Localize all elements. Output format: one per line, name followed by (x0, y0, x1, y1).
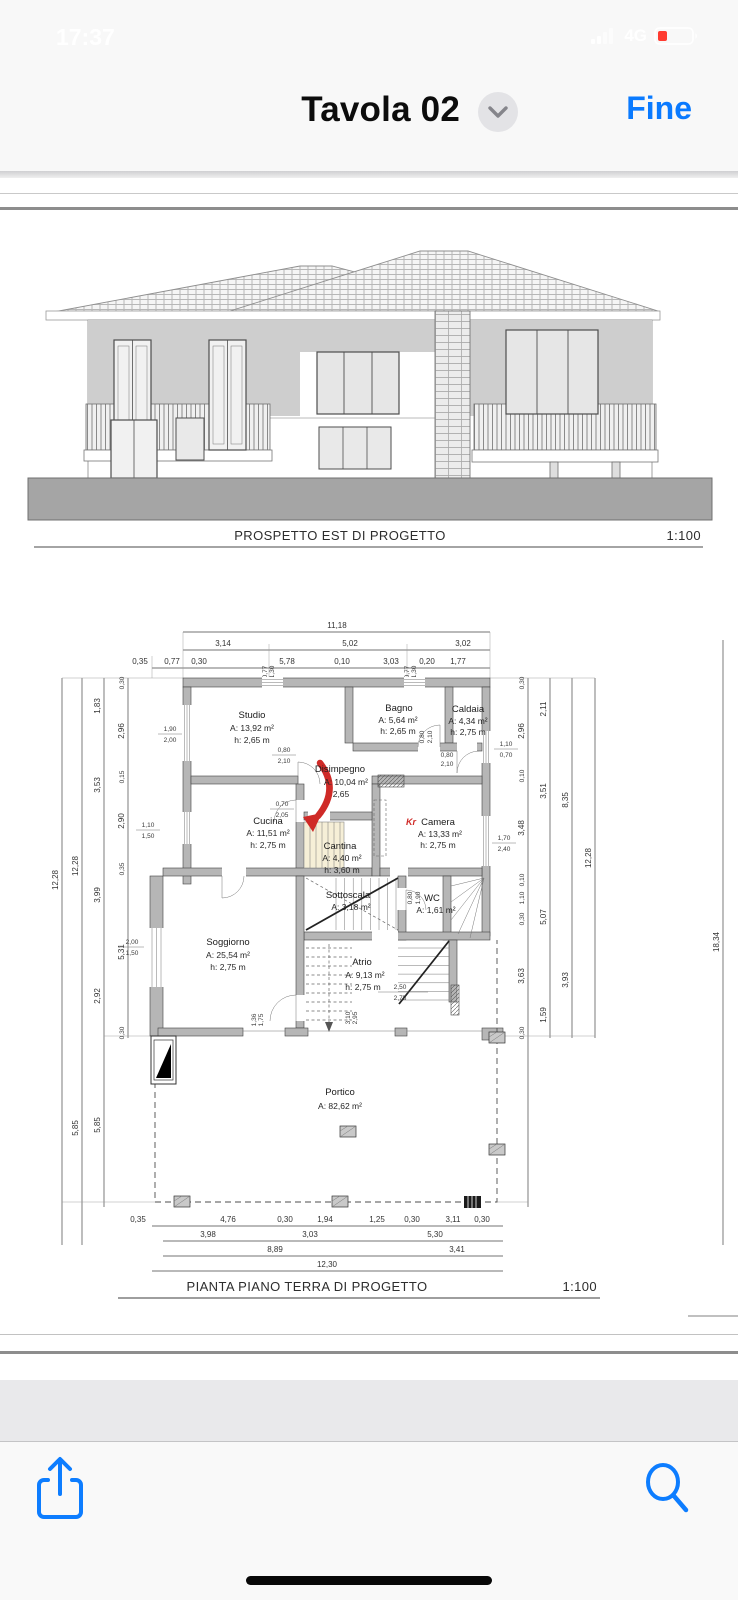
pillar-dark (464, 1196, 481, 1208)
svg-text:1,10: 1,10 (519, 891, 526, 904)
svg-text:5,02: 5,02 (342, 639, 358, 648)
svg-text:h: 2,75 m: h: 2,75 m (250, 840, 285, 850)
svg-text:2,90: 2,90 (117, 813, 126, 829)
svg-text:0,70: 0,70 (500, 752, 513, 759)
window-lower-small (176, 418, 204, 460)
svg-text:3,03: 3,03 (383, 657, 399, 666)
svg-text:5,30: 5,30 (427, 1230, 443, 1239)
svg-text:h: 2,75 m: h: 2,75 m (450, 727, 485, 737)
svg-text:3,10: 3,10 (345, 1011, 352, 1024)
svg-text:5,31: 5,31 (117, 944, 126, 960)
french-door (209, 340, 246, 450)
network-type-label: 4G (624, 26, 647, 46)
camera-red-mark: Kr (406, 817, 416, 827)
svg-text:A: 13,92 m²: A: 13,92 m² (230, 723, 274, 733)
svg-text:2,95: 2,95 (352, 1011, 359, 1024)
svg-text:1,50: 1,50 (126, 950, 139, 957)
svg-text:2,96: 2,96 (517, 723, 526, 739)
svg-text:3,98: 3,98 (200, 1230, 216, 1239)
svg-text:3,11: 3,11 (446, 1215, 462, 1224)
plan-scale: 1:100 (562, 1279, 597, 1294)
svg-text:3,99: 3,99 (93, 887, 102, 903)
svg-text:2,10: 2,10 (278, 758, 291, 765)
top-chrome: 17:37 4G Tavola 02 Fine (0, 0, 738, 171)
svg-text:A: 82,62 m²: A: 82,62 m² (318, 1101, 362, 1111)
svg-text:3,63: 3,63 (517, 968, 526, 984)
ground-band (28, 478, 712, 520)
svg-text:3,14: 3,14 (215, 639, 231, 648)
dim-bottom: 0,35 4,76 0,30 1,94 1,25 0,30 3,11 0,30 … (130, 1215, 503, 1271)
svg-text:0,10: 0,10 (519, 873, 526, 886)
svg-text:0,35: 0,35 (130, 1215, 146, 1224)
svg-text:2,11: 2,11 (539, 701, 548, 717)
svg-text:12,28: 12,28 (51, 869, 60, 890)
svg-text:0,77: 0,77 (404, 665, 411, 678)
svg-text:5,07: 5,07 (539, 909, 548, 925)
svg-text:1,30: 1,30 (269, 665, 276, 678)
svg-text:A: 9,13 m²: A: 9,13 m² (345, 970, 384, 980)
svg-text:0,30: 0,30 (191, 657, 207, 666)
svg-text:A: 4,34 m²: A: 4,34 m² (448, 716, 487, 726)
dim-right: 0,30 2,96 0,10 3,48 0,10 1,10 0,30 3,63 … (490, 640, 723, 1245)
page-edge-line-bottom-1 (0, 1334, 738, 1335)
done-button[interactable]: Fine (626, 90, 692, 127)
svg-text:0,30: 0,30 (519, 912, 526, 925)
svg-text:0,30: 0,30 (277, 1215, 293, 1224)
svg-text:1,83: 1,83 (93, 698, 102, 714)
svg-text:12,28: 12,28 (584, 847, 593, 868)
elevation-caption: PROSPETTO EST DI PROGETTO (234, 528, 446, 543)
elevation-drawing: PROSPETTO EST DI PROGETTO 1:100 (28, 251, 712, 547)
svg-text:h: 3,60 m: h: 3,60 m (324, 865, 359, 875)
svg-text:A: 3,18 m²: A: 3,18 m² (331, 902, 370, 912)
svg-text:8,89: 8,89 (267, 1245, 283, 1254)
svg-text:0,80: 0,80 (278, 747, 291, 754)
svg-text:1,25: 1,25 (369, 1215, 385, 1224)
svg-text:A: 1,61 m²: A: 1,61 m² (416, 905, 455, 915)
svg-text:0,80: 0,80 (441, 752, 454, 759)
svg-text:2,05: 2,05 (276, 812, 289, 819)
status-icons: 4G (591, 26, 700, 46)
svg-text:A: 5,64 m²: A: 5,64 m² (378, 715, 417, 725)
window-lower-middle (319, 427, 391, 469)
svg-text:1,10: 1,10 (142, 822, 155, 829)
svg-text:2,75: 2,75 (394, 995, 407, 1002)
svg-text:0,35: 0,35 (132, 657, 148, 666)
svg-text:2,65: 2,65 (333, 789, 350, 799)
svg-text:12,28: 12,28 (71, 855, 80, 876)
svg-text:8,35: 8,35 (561, 792, 570, 808)
svg-text:Studio: Studio (239, 710, 266, 721)
pillar (489, 1032, 505, 1043)
floor-plan-drawing: 11,18 3,14 5,02 3,02 0,35 0,77 0,30 5,78… (51, 621, 738, 1316)
page-gap-band (0, 1380, 738, 1442)
shutter-symbol (151, 1036, 176, 1084)
svg-text:1,59: 1,59 (539, 1007, 548, 1023)
entry-door (111, 420, 157, 478)
svg-text:h: 2,65 m: h: 2,65 m (380, 726, 415, 736)
svg-text:0,30: 0,30 (404, 1215, 420, 1224)
plan-caption: PIANTA PIANO TERRA DI PROGETTO (187, 1279, 428, 1294)
page-edge-line-bottom-2 (0, 1351, 738, 1354)
svg-text:0,77: 0,77 (262, 665, 269, 678)
svg-text:0,30: 0,30 (519, 1026, 526, 1039)
svg-text:0,70: 0,70 (276, 801, 289, 808)
roof-fascia (46, 311, 660, 320)
svg-text:Camera: Camera (421, 817, 456, 828)
svg-text:3,41: 3,41 (449, 1245, 465, 1254)
svg-text:2,00: 2,00 (126, 939, 139, 946)
svg-text:1,90: 1,90 (415, 891, 422, 904)
pillar (174, 1196, 190, 1207)
pillar (489, 1144, 505, 1155)
svg-text:1,77: 1,77 (450, 657, 466, 666)
svg-text:2,10: 2,10 (441, 761, 454, 768)
stone-chimney (435, 311, 470, 478)
svg-text:18,34: 18,34 (712, 931, 721, 952)
svg-text:A: 25,54 m²: A: 25,54 m² (206, 950, 250, 960)
svg-text:11,18: 11,18 (327, 621, 347, 630)
svg-text:0,15: 0,15 (119, 770, 126, 783)
svg-text:4,76: 4,76 (220, 1215, 236, 1224)
battery-low-icon (654, 26, 700, 46)
search-button[interactable] (640, 1460, 696, 1518)
search-icon (648, 1465, 686, 1510)
svg-text:2,96: 2,96 (117, 723, 126, 739)
svg-text:5,78: 5,78 (279, 657, 295, 666)
svg-text:0,80: 0,80 (407, 891, 414, 904)
svg-text:1,50: 1,50 (142, 833, 155, 840)
pdf-page[interactable]: PROSPETTO EST DI PROGETTO 1:100 11,18 3,… (0, 210, 738, 1355)
svg-text:2,40: 2,40 (498, 846, 511, 853)
svg-text:0,30: 0,30 (519, 676, 526, 689)
svg-text:3,53: 3,53 (93, 777, 102, 793)
svg-text:0,77: 0,77 (164, 657, 180, 666)
svg-text:3,48: 3,48 (517, 820, 526, 836)
share-icon (39, 1459, 81, 1517)
svg-text:5,85: 5,85 (71, 1120, 80, 1136)
svg-text:Sottoscala: Sottoscala (326, 890, 371, 901)
svg-text:1,90: 1,90 (164, 726, 177, 733)
elevation-scale: 1:100 (666, 528, 701, 543)
svg-text:0,80: 0,80 (419, 730, 426, 743)
home-indicator[interactable] (246, 1576, 492, 1585)
svg-text:Caldaia: Caldaia (452, 704, 485, 715)
svg-text:A: 13,33 m²: A: 13,33 m² (418, 829, 462, 839)
svg-text:A: 10,04 m²: A: 10,04 m² (324, 777, 368, 787)
svg-text:3,51: 3,51 (539, 783, 548, 799)
page-title: Tavola 02 (0, 90, 460, 130)
svg-text:2,92: 2,92 (93, 988, 102, 1004)
svg-text:1,36: 1,36 (251, 1013, 258, 1026)
title-menu-button[interactable] (478, 92, 518, 132)
cellular-signal-icon (591, 27, 617, 45)
svg-text:3,03: 3,03 (302, 1230, 318, 1239)
pillar (340, 1126, 356, 1137)
svg-text:3,02: 3,02 (455, 639, 471, 648)
share-button[interactable] (36, 1456, 92, 1522)
dim-top: 11,18 3,14 5,02 3,02 0,35 0,77 0,30 5,78… (132, 621, 490, 678)
svg-text:h: 2,75 m: h: 2,75 m (345, 982, 380, 992)
page-edge-line-top-1 (0, 193, 738, 194)
svg-text:0,20: 0,20 (419, 657, 435, 666)
svg-text:A: 11,51 m²: A: 11,51 m² (246, 828, 289, 838)
svg-text:Atrio: Atrio (352, 957, 372, 968)
svg-text:0,10: 0,10 (519, 769, 526, 782)
svg-text:Cantina: Cantina (324, 841, 357, 852)
svg-text:5,85: 5,85 (93, 1117, 102, 1133)
svg-text:2,00: 2,00 (164, 737, 177, 744)
svg-text:0,10: 0,10 (334, 657, 350, 666)
svg-text:2,10: 2,10 (427, 730, 434, 743)
svg-text:h: 2,65 m: h: 2,65 m (234, 735, 269, 745)
svg-text:3,93: 3,93 (561, 972, 570, 988)
svg-text:0,30: 0,30 (119, 1026, 126, 1039)
svg-text:0,30: 0,30 (119, 676, 126, 689)
svg-text:1,70: 1,70 (498, 835, 511, 842)
svg-text:Portico: Portico (325, 1087, 355, 1098)
svg-text:0,30: 0,30 (474, 1215, 490, 1224)
pillar (332, 1196, 348, 1207)
svg-text:Soggiorno: Soggiorno (206, 937, 249, 948)
window-upper-right (506, 330, 598, 414)
svg-text:h: 2,75 m: h: 2,75 m (210, 962, 245, 972)
svg-text:Bagno: Bagno (385, 703, 412, 714)
svg-text:A: 4,40 m²: A: 4,40 m² (322, 853, 361, 863)
window-upper-middle (317, 352, 399, 414)
svg-text:WC: WC (424, 893, 440, 904)
svg-text:2,50: 2,50 (394, 984, 407, 991)
svg-text:1,75: 1,75 (258, 1013, 265, 1026)
svg-text:1,10: 1,10 (500, 741, 513, 748)
svg-text:12,30: 12,30 (317, 1260, 338, 1269)
svg-text:Disimpegno: Disimpegno (315, 764, 365, 775)
svg-text:0,35: 0,35 (119, 862, 126, 875)
chevron-down-icon (488, 106, 508, 118)
svg-text:h: 2,75 m: h: 2,75 m (420, 840, 455, 850)
svg-text:1,30: 1,30 (411, 665, 418, 678)
svg-text:1,94: 1,94 (317, 1215, 333, 1224)
navbar-shadow (0, 171, 738, 178)
status-time: 17:37 (56, 24, 115, 51)
